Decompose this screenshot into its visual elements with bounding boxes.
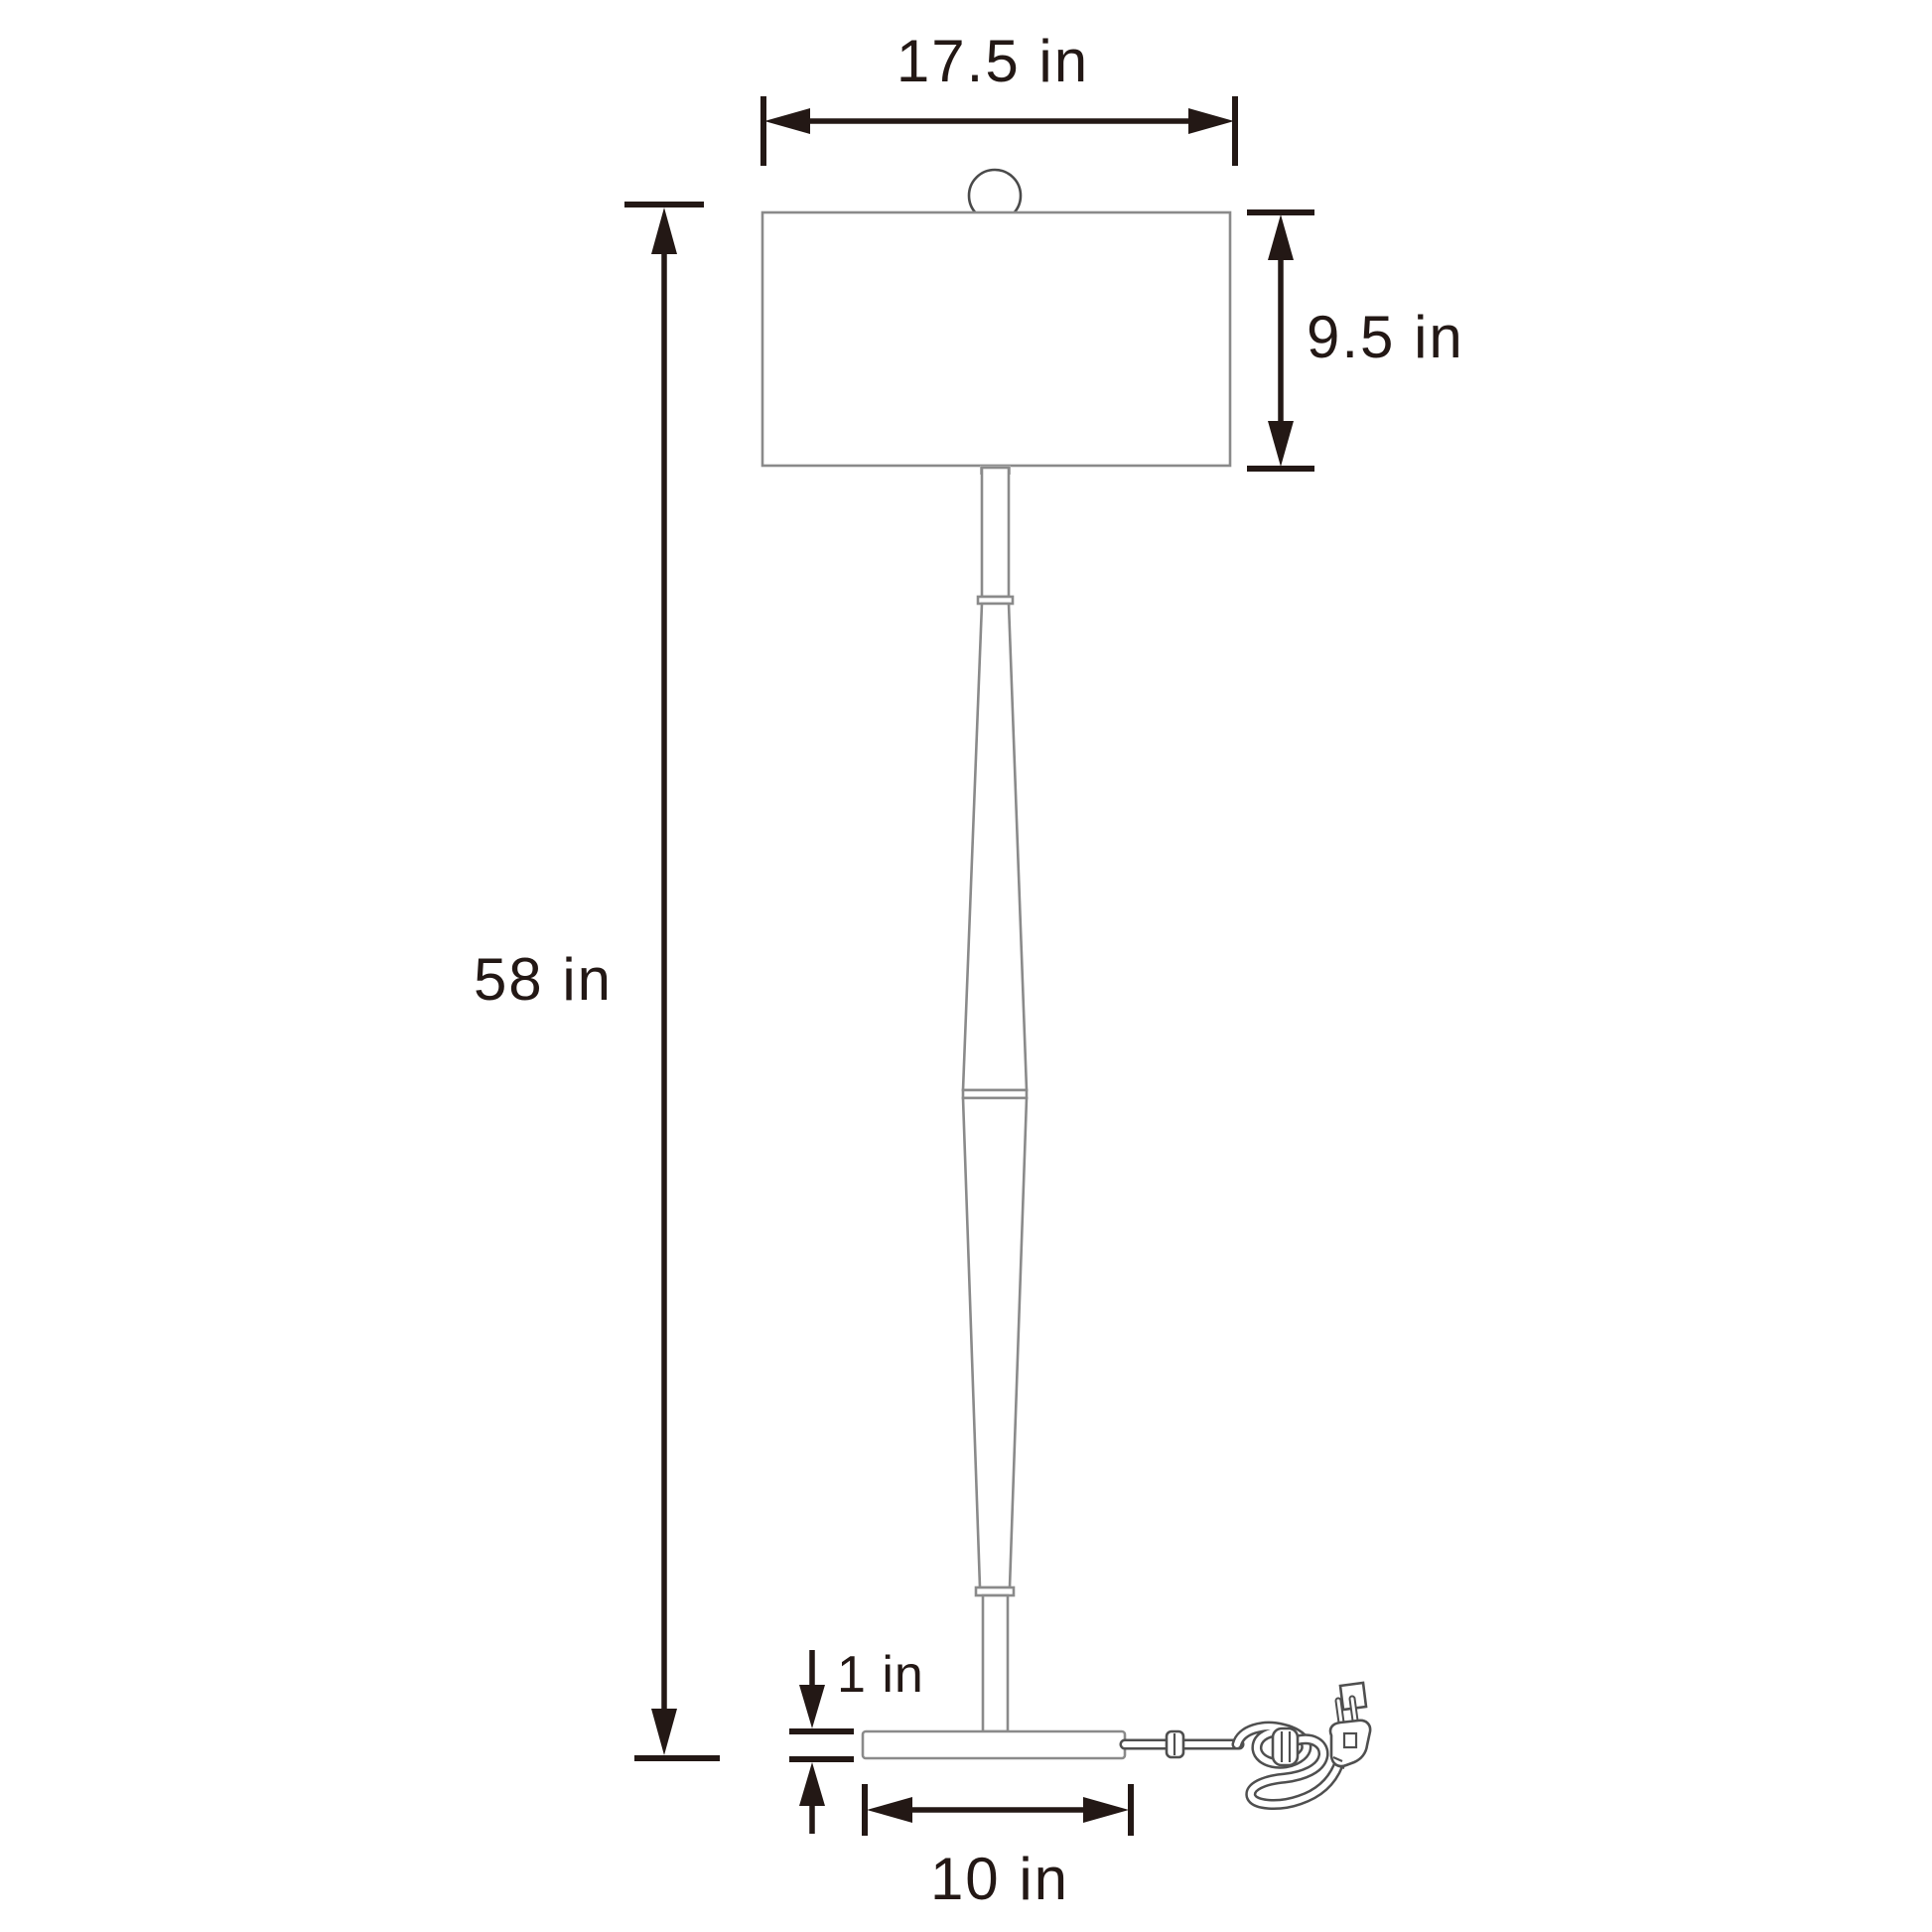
label-base-width: 10 in [930, 1846, 1069, 1912]
arrowhead-left [867, 1797, 912, 1823]
arrowhead-right [1083, 1797, 1129, 1823]
pole-upper-spindle [963, 604, 1027, 1090]
cord-knot-wrap [1273, 1728, 1298, 1765]
arrowhead-bottom [651, 1709, 677, 1755]
dim-total-height: 58 in [474, 205, 720, 1758]
pole-lower-spindle [963, 1098, 1027, 1587]
diagram-canvas: 17.5 in 9.5 in 58 in 1 in [0, 0, 1932, 1932]
cord-strain-collar [1167, 1731, 1183, 1757]
arrowhead-up [799, 1762, 825, 1806]
dim-shade-height: 9.5 in [1247, 212, 1464, 469]
floor-lamp-dimension-diagram: 17.5 in 9.5 in 58 in 1 in [0, 0, 1932, 1932]
pole-neck [982, 468, 1009, 597]
label-total-height: 58 in [474, 946, 613, 1013]
arrowhead-left [764, 108, 810, 134]
lamp-shade [762, 212, 1230, 466]
pole-bottom-rod [983, 1595, 1008, 1731]
lamp-base [863, 1731, 1125, 1758]
arrowhead-top [1268, 214, 1294, 260]
label-shade-height: 9.5 in [1307, 304, 1464, 370]
power-plug [1330, 1683, 1370, 1768]
arrowhead-down [799, 1685, 825, 1728]
arrowhead-right [1188, 108, 1234, 134]
dim-shade-width: 17.5 in [763, 28, 1235, 166]
label-shade-width: 17.5 in [897, 28, 1089, 94]
label-base-thickness: 1 in [837, 1646, 924, 1704]
arrowhead-bottom [1268, 421, 1294, 467]
dim-base-width: 10 in [865, 1784, 1131, 1912]
arrowhead-top [651, 207, 677, 254]
power-cord [1125, 1726, 1338, 1804]
lamp-pole [963, 468, 1027, 1731]
